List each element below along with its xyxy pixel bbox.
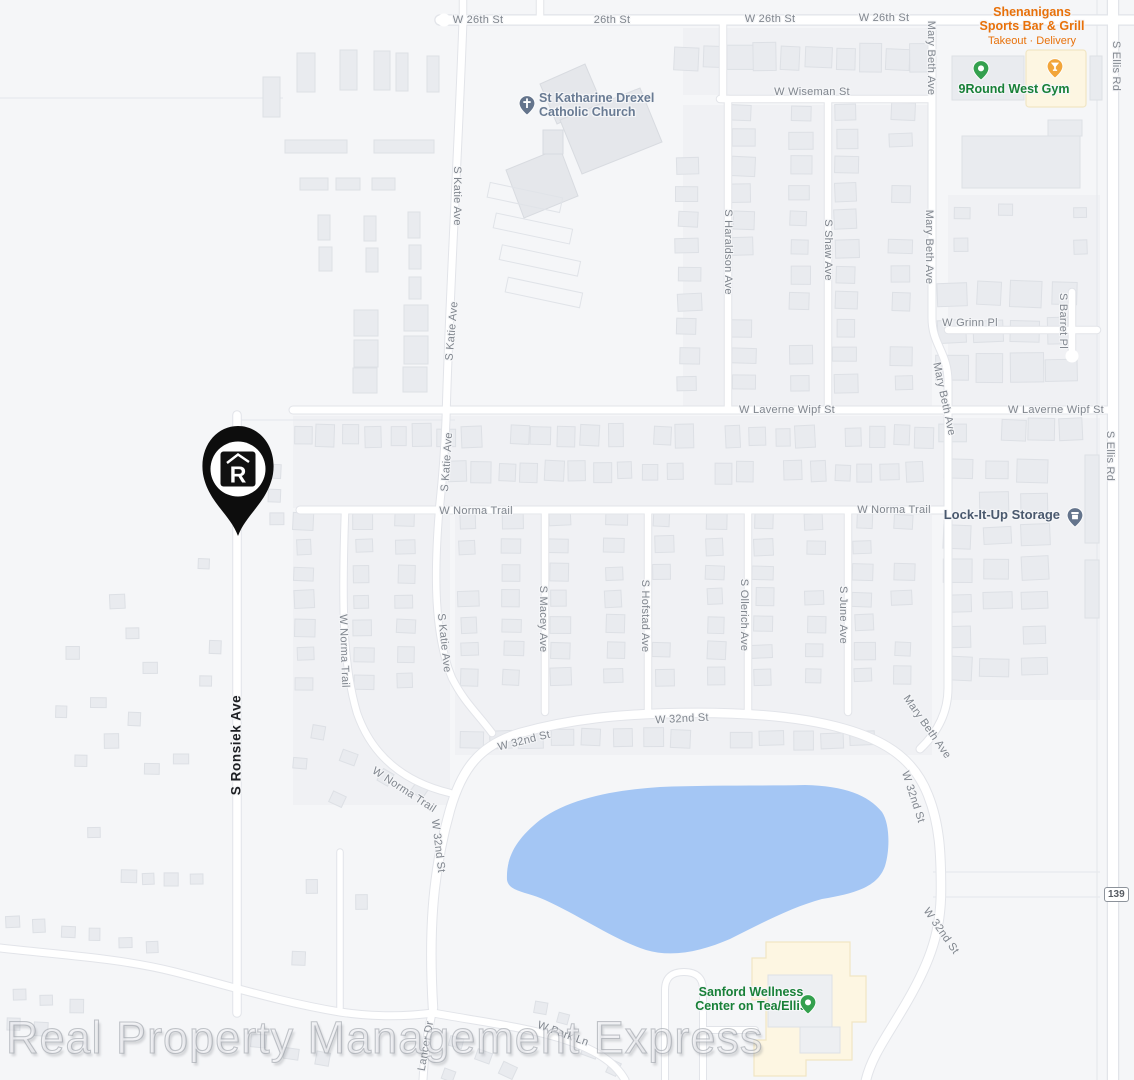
street-label: W Laverne Wipf St bbox=[739, 404, 835, 416]
street-label: W Norma Trail bbox=[857, 504, 931, 516]
street-label: W 26th St bbox=[453, 14, 504, 26]
storage-pin-icon[interactable] bbox=[1064, 506, 1086, 533]
street-label: W Norma Trail bbox=[439, 505, 513, 517]
poi-name-line: Center on Tea/Ellis bbox=[695, 999, 807, 1013]
street-label: S June Ave bbox=[837, 586, 849, 644]
poi-name-line: 9Round West Gym bbox=[959, 82, 1070, 96]
street-label: S Ollerich Ave bbox=[738, 579, 750, 651]
cocktail-pin-icon[interactable] bbox=[1044, 57, 1066, 84]
route-139-badge: 139 bbox=[1104, 887, 1129, 902]
map-canvas[interactable]: W 26th St26th StW 26th StW 26th StS Elli… bbox=[0, 0, 1134, 1080]
wellness-pin-icon[interactable] bbox=[797, 993, 819, 1020]
property-marker[interactable]: R bbox=[196, 422, 280, 543]
poi-name-line: Lock-It-Up Storage bbox=[944, 508, 1060, 522]
street-label: S Haraldson Ave bbox=[722, 209, 734, 295]
street-label: W Norma Trail bbox=[337, 614, 352, 688]
poi-name-line: St Katharine Drexel bbox=[539, 91, 654, 105]
street-label: S Macey Ave bbox=[537, 586, 549, 653]
street-label: W 26th St bbox=[745, 13, 796, 25]
poi-label-shenanigans[interactable]: Shenanigans Sports Bar & Grill Takeout ·… bbox=[980, 5, 1085, 48]
poi-subtitle: Takeout · Delivery bbox=[980, 34, 1085, 48]
street-label: W 26th St bbox=[859, 12, 910, 24]
watermark: Real Property Management Express bbox=[6, 1012, 763, 1064]
poi-name-line: Sports Bar & Grill bbox=[980, 19, 1085, 33]
lake bbox=[507, 785, 889, 953]
street-label: S Shaw Ave bbox=[822, 219, 834, 281]
poi-label-9round[interactable]: 9Round West Gym bbox=[959, 82, 1070, 96]
marker-logo-letter: R bbox=[230, 462, 247, 488]
street-label: 26th St bbox=[594, 14, 631, 26]
poi-label-sanford-wellness[interactable]: Sanford Wellness Center on Tea/Ellis bbox=[695, 985, 807, 1013]
church-pin-icon[interactable] bbox=[516, 94, 538, 121]
street-label: S Ronsiek Ave bbox=[229, 695, 244, 796]
street-label: S Katie Ave bbox=[451, 166, 463, 225]
poi-name-line: Shenanigans bbox=[980, 5, 1085, 19]
street-label: S Ellis Rd bbox=[1104, 431, 1116, 481]
poi-label-church[interactable]: St Katharine Drexel Catholic Church bbox=[539, 91, 654, 119]
street-label: W Laverne Wipf St bbox=[1008, 404, 1104, 416]
poi-name-line: Sanford Wellness bbox=[695, 985, 807, 999]
street-label: Mary Beth Ave bbox=[925, 21, 937, 96]
map-base-layer bbox=[0, 0, 1134, 1080]
street-label: S Ellis Rd bbox=[1110, 41, 1122, 91]
street-label: Mary Beth Ave bbox=[923, 210, 935, 285]
street-label: S Barret Pl bbox=[1057, 293, 1069, 349]
poi-label-lockitup[interactable]: Lock-It-Up Storage bbox=[944, 508, 1060, 522]
street-label: W Wiseman St bbox=[774, 86, 850, 98]
street-label: S Hofstad Ave bbox=[639, 580, 651, 653]
street-label: W Grinn Pl bbox=[942, 317, 998, 329]
poi-name-line: Catholic Church bbox=[539, 105, 654, 119]
